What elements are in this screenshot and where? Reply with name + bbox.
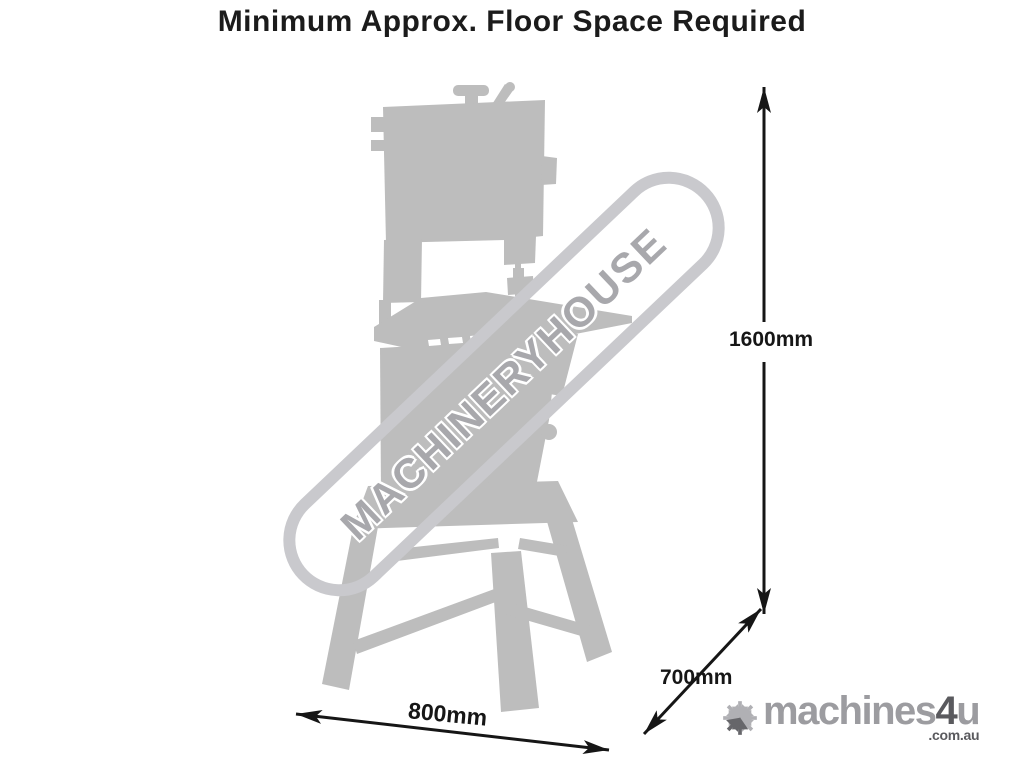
arrow-snowflake-icon [720,698,760,738]
dimension-arrows [0,0,1024,768]
logo-text-block: machines4u .com.au [763,694,979,742]
machines4u-logo: machines4u .com.au [720,694,979,742]
logo-word-machines: machines [763,689,936,733]
depth-dimension-label: 700mm [660,666,732,690]
height-dimension-label: 1600mm [729,328,813,352]
logo-wordmark: machines4u [763,694,979,728]
logo-domain-suffix: .com.au [928,728,979,742]
floor-space-diagram: MACHINERYHOUSE 1600mm 700mm 800mm Minimu… [0,0,1024,768]
